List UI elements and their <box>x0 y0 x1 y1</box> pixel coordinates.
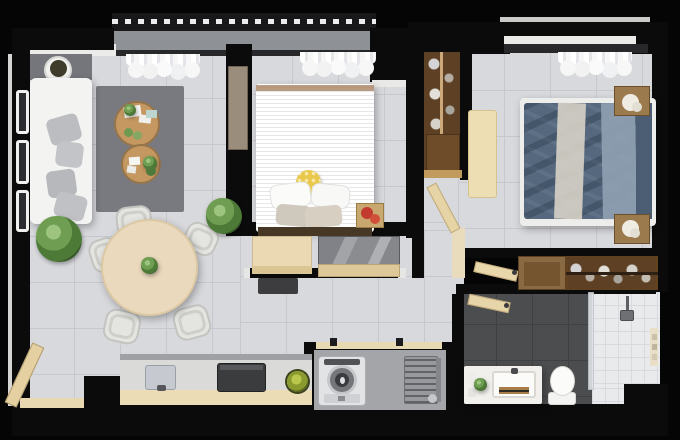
curtain-living-scallop <box>128 62 144 78</box>
coffee-table-cup-2 <box>133 131 142 140</box>
window-left-2 <box>16 140 29 184</box>
dining-table-plant <box>141 257 158 274</box>
pillow-pattern-right <box>304 204 343 228</box>
curtain-bedroom1-scallop <box>302 60 318 76</box>
bed-2-stripe-lightblue <box>601 103 637 220</box>
herb-bowl <box>287 371 308 392</box>
bed-1-fold-edge <box>256 85 374 91</box>
bedroom2-bench <box>468 110 497 198</box>
wall-bath-bottom-right <box>624 384 668 408</box>
window-left-3 <box>16 190 29 232</box>
heater-valve <box>428 394 437 403</box>
curtain-bedroom2-scallop <box>560 60 576 76</box>
entry-threshold <box>20 398 84 408</box>
niche-bottle-2 <box>652 344 657 350</box>
column-sill <box>372 80 410 87</box>
side-table-plant <box>50 60 67 77</box>
hall-door-handle <box>512 270 517 275</box>
shower-glass-panel <box>588 292 594 390</box>
bedroom1-cabinet-wood-front <box>252 266 312 274</box>
soap-bottle-2 <box>468 388 476 397</box>
kitchen-counter-front <box>120 390 312 405</box>
basin-wood-line <box>499 390 529 392</box>
wall-bathroom-left <box>452 294 464 408</box>
wall-bedroom1-right <box>406 38 424 238</box>
bed-1-headboard <box>258 227 372 236</box>
coffee-table-plant <box>124 104 136 116</box>
sofa-cushion-2 <box>55 140 85 168</box>
coffee-table-cup-1 <box>124 128 133 137</box>
bed-2-stripe-cream <box>554 103 586 220</box>
shower-head <box>620 310 634 321</box>
corridor-dark-box <box>258 278 298 294</box>
laundry-hook-left <box>330 338 337 346</box>
wardrobe-rail <box>440 52 443 138</box>
coffee-table-note-2 <box>127 165 137 173</box>
toilet-bowl <box>550 366 575 396</box>
tv-board <box>228 66 248 150</box>
balcony-railing <box>112 13 376 31</box>
bed-2-head-strip <box>636 103 652 219</box>
bathroom-door-handle <box>504 303 509 308</box>
washer-drop-glyph <box>340 377 345 384</box>
heater-pipe <box>436 358 441 402</box>
corridor-plant <box>206 198 242 234</box>
lamp-north-small <box>632 102 642 112</box>
wardrobe-dresser-front <box>424 170 462 178</box>
screenshot-root: { "canvas": { "w": 680, "h": 440 }, "roo… <box>0 0 680 440</box>
vanity-plant <box>474 378 487 391</box>
wall-hall-stub <box>412 232 424 278</box>
floor-plant-sofa <box>36 216 82 262</box>
cooktop-edge <box>220 365 263 370</box>
floorplan-3d-render <box>0 0 680 440</box>
basin-faucet <box>511 368 518 374</box>
niche-bottle-1 <box>652 334 657 340</box>
bedroom1-cabinet-glass <box>318 236 400 266</box>
laundry-hook-right <box>396 338 403 346</box>
closet-cabinet-front <box>524 262 560 286</box>
red-vase-2 <box>370 214 380 224</box>
window-left-1 <box>16 90 29 134</box>
wall-cap-a <box>244 268 250 278</box>
closet-rail <box>566 272 658 275</box>
wall-kitchen-jog <box>84 376 122 408</box>
coffee-table-pot <box>146 166 156 176</box>
coffee-table-card <box>146 110 157 118</box>
wardrobe-dresser <box>426 134 460 172</box>
wall-outer-top-left <box>12 28 114 50</box>
bedroom2-door-frame <box>452 228 465 278</box>
kitchen-faucet <box>157 385 166 391</box>
niche-bottle-3 <box>652 354 657 360</box>
coffee-table-note-1 <box>129 157 141 166</box>
lamp-south-small <box>630 228 640 238</box>
washer-button <box>338 396 345 401</box>
bedroom1-cabinet-glass-front <box>318 264 400 277</box>
